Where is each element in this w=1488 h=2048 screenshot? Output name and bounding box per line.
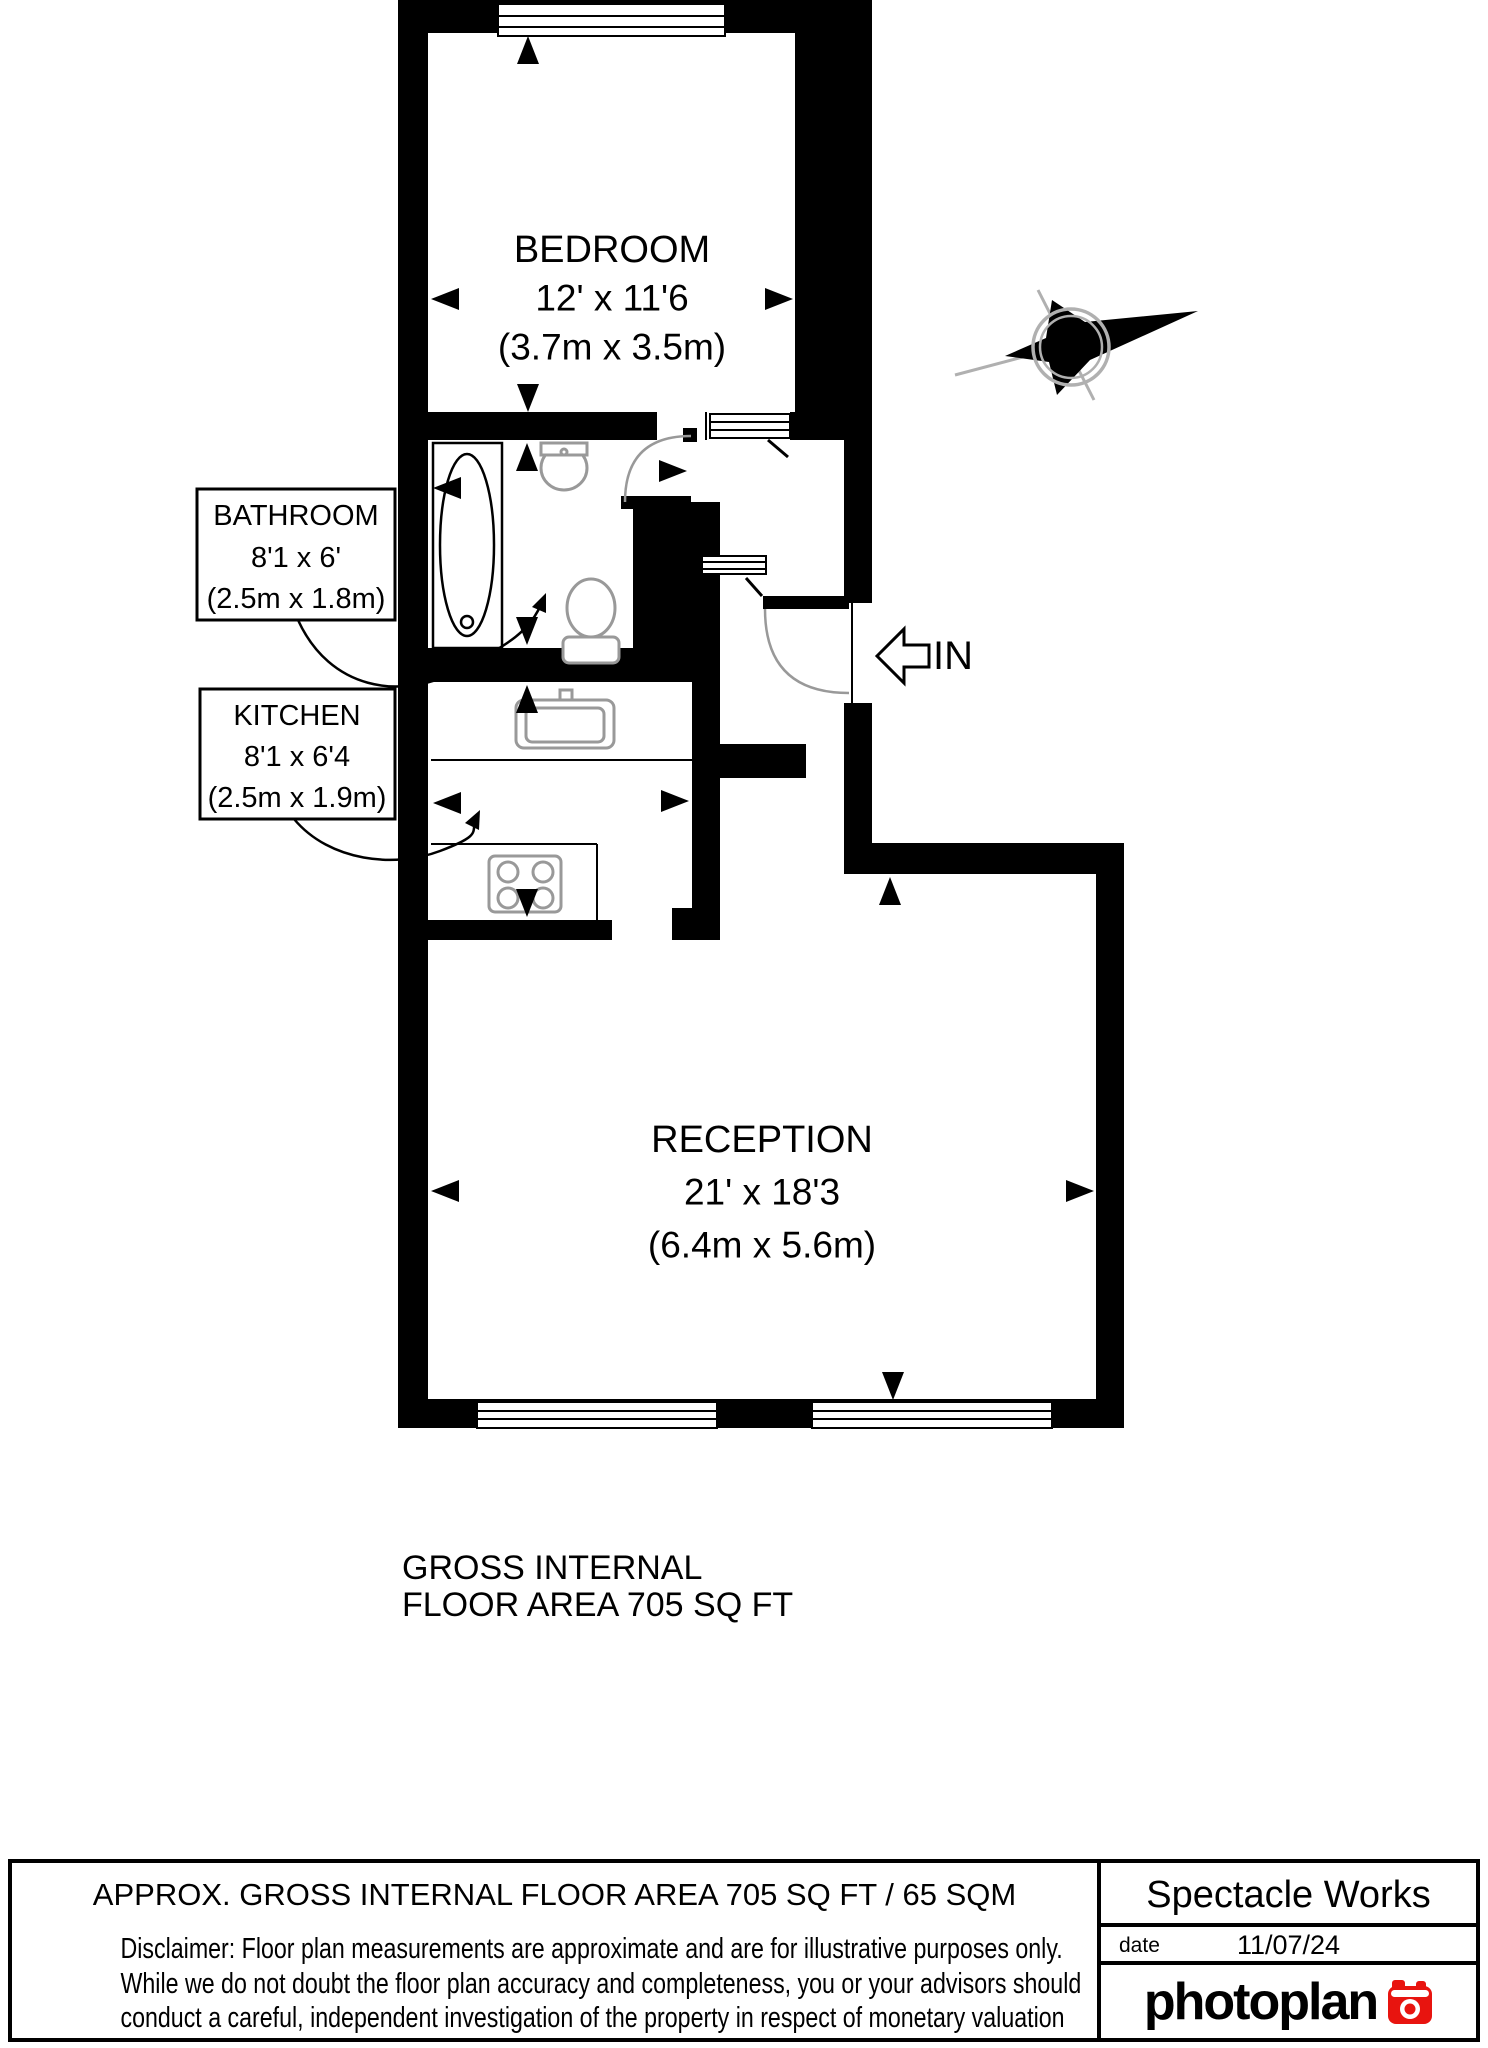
wall-hall-bottom xyxy=(692,744,806,778)
entrance-door-leaf xyxy=(763,596,849,609)
bedroom-arrow-left xyxy=(431,288,459,310)
footer-box: APPROX. GROSS INTERNAL FLOOR AREA 705 SQ… xyxy=(8,1859,1480,2042)
in-arrow-icon xyxy=(877,629,929,683)
area-note-line1: GROSS INTERNAL xyxy=(402,1549,702,1587)
in-label: IN xyxy=(933,634,973,678)
wall-bedroom-bottom-left xyxy=(398,412,656,440)
date-row: date 11/07/24 xyxy=(1101,1927,1476,1965)
footer-info-panel: Spectacle Works date 11/07/24 photoplan xyxy=(1097,1863,1476,2038)
hall-top-shelf xyxy=(710,414,790,438)
bathtub-icon xyxy=(433,443,502,648)
brand-logo: photoplan xyxy=(1101,1965,1476,2038)
wall-bathroom-pier xyxy=(633,502,720,682)
bedroom-arrow-up xyxy=(517,36,539,64)
bathroom-label: BATHROOM xyxy=(213,500,378,532)
bathroom-dims-m: (2.5m x 1.8m) xyxy=(207,583,386,615)
north-compass-icon: N xyxy=(955,290,1198,400)
kitchen-leader-arrowhead xyxy=(465,810,480,830)
kitchen-arrow-left xyxy=(433,792,461,814)
camera-icon xyxy=(1387,1979,1433,2025)
bedroom-dims-ft: 12' x 11'6 xyxy=(535,278,688,319)
kitchen-leader-line xyxy=(294,816,476,860)
kitchen-arrow-right xyxy=(661,790,689,812)
footer-disclaimer-panel: APPROX. GROSS INTERNAL FLOOR AREA 705 SQ… xyxy=(12,1863,1097,2038)
wall-entry-below-door xyxy=(844,703,872,843)
wall-left xyxy=(398,0,428,1428)
bathroom-dims-ft: 8'1 x 6' xyxy=(251,542,341,574)
bedroom-label: BEDROOM xyxy=(514,229,710,271)
bathroom-arrow-down xyxy=(516,617,538,645)
kitchen-dims-ft: 8'1 x 6'4 xyxy=(244,741,350,773)
wall-kitchen-bottom xyxy=(398,920,612,940)
date-value: 11/07/24 xyxy=(1101,1930,1476,1961)
wall-kitchen-foot xyxy=(672,908,720,940)
reception-arrow-right xyxy=(1066,1180,1094,1202)
kitchen-dims-m: (2.5m x 1.9m) xyxy=(208,782,387,814)
company-name: Spectacle Works xyxy=(1101,1863,1476,1927)
wall-kitchen-right xyxy=(692,682,720,940)
wall-bedroom-right-mass xyxy=(795,0,872,440)
entrance-door-arc xyxy=(765,609,849,693)
brand-name: photoplan xyxy=(1144,1976,1377,2028)
bathroom-leader-arrowhead xyxy=(532,593,546,613)
area-note: GROSS INTERNAL FLOOR AREA 705 SQ FT xyxy=(402,1549,793,1624)
footer-disclaimer-line3: conduct a careful, independent investiga… xyxy=(121,2002,989,2035)
bathroom-arrow-right xyxy=(659,460,687,482)
reception-dims-m: (6.4m x 5.6m) xyxy=(648,1225,876,1266)
kitchen-label: KITCHEN xyxy=(233,700,360,732)
entrance-in-marker: IN xyxy=(877,629,973,683)
bedroom-arrow-right xyxy=(765,288,793,310)
floor-plan: BEDROOM 12' x 11'6 (3.7m x 3.5m) RECEPTI… xyxy=(0,0,1488,1859)
bathroom-sink-icon xyxy=(541,443,587,490)
hall-top-shelf-tick xyxy=(768,440,788,457)
walls xyxy=(398,0,1124,1428)
kitchen-fixtures xyxy=(431,690,692,920)
kitchen-label-box: KITCHEN 8'1 x 6'4 (2.5m x 1.9m) xyxy=(200,689,480,860)
wall-entry-above-door xyxy=(844,440,872,603)
bathroom-arrow-up xyxy=(516,443,538,471)
footer-disclaimer-line2: While we do not doubt the floor plan acc… xyxy=(121,1968,989,2001)
wall-right xyxy=(1096,874,1124,1428)
area-note-line2: FLOOR AREA 705 SQ FT xyxy=(402,1586,793,1624)
footer-disclaimer-line1: Disclaimer: Floor plan measurements are … xyxy=(121,1933,989,1966)
footer-area-summary: APPROX. GROSS INTERNAL FLOOR AREA 705 SQ… xyxy=(12,1877,1097,1913)
bedroom-window xyxy=(498,4,725,36)
wall-reception-top-right xyxy=(844,843,1124,874)
reception-arrow-down xyxy=(882,1372,904,1400)
bathroom-door-leaf xyxy=(621,496,691,509)
reception-dims-ft: 21' x 18'3 xyxy=(684,1172,840,1213)
hall-left-shelf-tick xyxy=(746,578,762,596)
bedroom-arrow-down xyxy=(517,384,539,412)
reception-label: RECEPTION xyxy=(651,1119,873,1161)
reception-window-left xyxy=(477,1402,717,1428)
bedroom-dims-m: (3.7m x 3.5m) xyxy=(498,327,726,368)
reception-arrow-up xyxy=(879,877,901,905)
wall-bedroom-bottom-right xyxy=(790,412,872,440)
reception-window-right xyxy=(812,1402,1052,1428)
hall-left-shelf xyxy=(702,556,766,574)
reception-arrow-left xyxy=(431,1180,459,1202)
toilet-icon xyxy=(563,579,619,663)
